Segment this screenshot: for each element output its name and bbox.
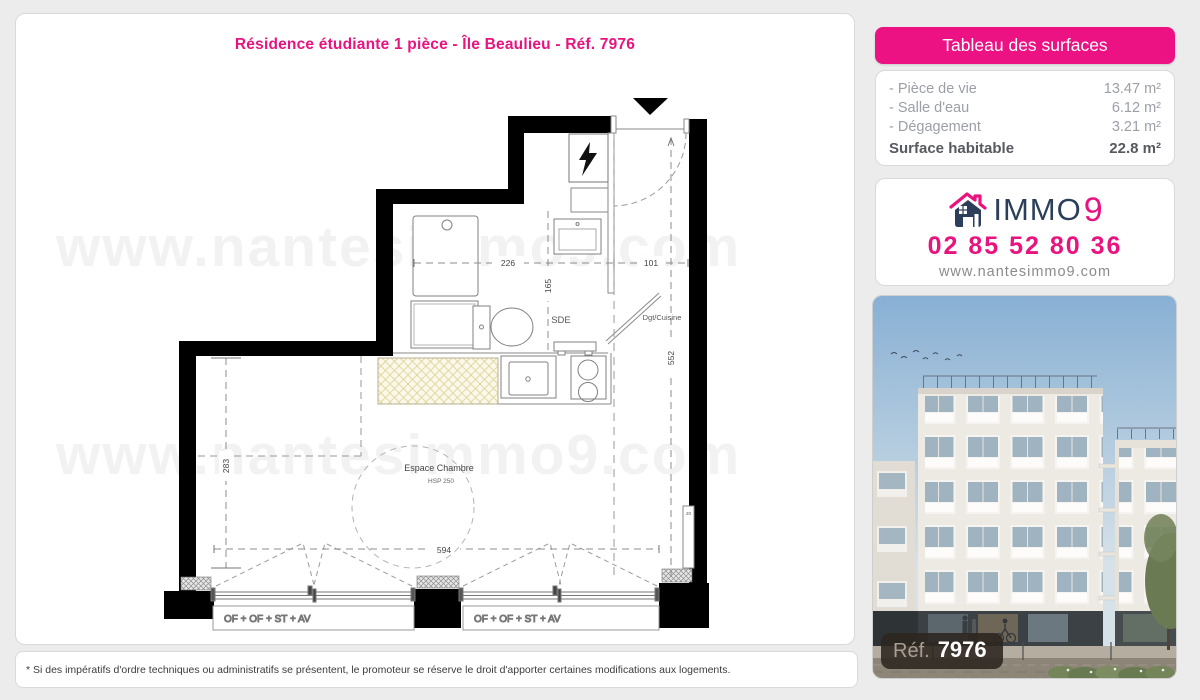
label-sde: SDE bbox=[551, 315, 571, 326]
surface-row: - Dégagement 3.21 m² bbox=[889, 118, 1161, 137]
surfaces-table-title: Tableau des surfaces bbox=[942, 35, 1107, 56]
electrical-panel bbox=[569, 134, 608, 212]
building-photo-illustration bbox=[873, 296, 1177, 679]
disclaimer-bar: * Si des impératifs d'ordre techniques o… bbox=[15, 651, 858, 688]
surface-value: 6.12 m² bbox=[1112, 99, 1161, 118]
svg-text:552: 552 bbox=[666, 351, 676, 365]
window-right: OF + OF + ST + AV bbox=[459, 543, 659, 630]
toilet-tank bbox=[473, 306, 490, 349]
surfaces-table: - Pièce de vie 13.47 m² - Salle d'eau 6.… bbox=[875, 70, 1175, 166]
agency-phone[interactable]: 02 85 52 80 36 bbox=[876, 232, 1174, 261]
svg-text:165: 165 bbox=[543, 279, 553, 293]
house-logo-icon bbox=[947, 190, 991, 230]
bathroom-cabinet bbox=[411, 301, 478, 348]
bathroom-fixtures bbox=[411, 216, 601, 355]
surface-total-value: 22.8 m² bbox=[1109, 140, 1161, 157]
surface-value: 3.21 m² bbox=[1112, 118, 1161, 137]
surface-total-label: Surface habitable bbox=[889, 140, 1014, 157]
floor-plan-drawing: 20 OF + OF + ST + AV OF + OF + ST + bbox=[156, 96, 736, 645]
surface-label: - Dégagement bbox=[889, 118, 981, 137]
agency-logo: IMMO 9 bbox=[876, 189, 1174, 231]
svg-text:226: 226 bbox=[501, 258, 515, 268]
svg-text:OF + OF + ST + AV: OF + OF + ST + AV bbox=[474, 614, 561, 625]
svg-text:283: 283 bbox=[221, 459, 231, 473]
window-left: OF + OF + ST + AV bbox=[211, 543, 415, 630]
pillar-hatching bbox=[181, 569, 692, 590]
flower-bed bbox=[1048, 666, 1175, 679]
main-building bbox=[918, 376, 1103, 636]
shower-tray bbox=[413, 216, 478, 296]
ref-label: Réf. bbox=[893, 640, 930, 663]
label-espace-chambre: Espace Chambre bbox=[404, 463, 474, 473]
agency-website-link[interactable]: www.nantesimmo9.com bbox=[876, 264, 1174, 280]
floor-plan-sheet: Résidence étudiante 1 pièce - Île Beauli… bbox=[15, 13, 855, 645]
svg-text:OF + OF + ST + AV: OF + OF + ST + AV bbox=[224, 614, 311, 625]
surface-value: 13.47 m² bbox=[1104, 80, 1161, 99]
surface-label: - Pièce de vie bbox=[889, 80, 977, 99]
washbasin bbox=[554, 219, 601, 254]
surface-row: - Salle d'eau 6.12 m² bbox=[889, 99, 1161, 118]
disclaimer-text: * Si des impératifs d'ordre techniques o… bbox=[16, 664, 730, 676]
page-title: Résidence étudiante 1 pièce - Île Beauli… bbox=[16, 36, 854, 54]
kitchen-fixtures bbox=[378, 356, 606, 404]
entry-arrow-icon bbox=[633, 98, 668, 115]
left-building bbox=[873, 461, 915, 611]
cooktop bbox=[571, 356, 606, 399]
surface-total-row: Surface habitable 22.8 m² bbox=[889, 140, 1161, 157]
surface-row: - Pièce de vie 13.47 m² bbox=[889, 80, 1161, 99]
toilet-bowl bbox=[491, 308, 533, 346]
label-hsp: HSP 250 bbox=[428, 478, 454, 485]
brand-nine-text: 9 bbox=[1084, 191, 1103, 230]
kitchen-worktop bbox=[378, 358, 498, 404]
building-photo: Réf. 7976 bbox=[872, 295, 1177, 679]
surface-label: - Salle d'eau bbox=[889, 99, 969, 118]
bench bbox=[554, 342, 596, 351]
reference-badge: Réf. 7976 bbox=[881, 633, 1003, 669]
surfaces-table-header: Tableau des surfaces bbox=[875, 27, 1175, 64]
svg-text:101: 101 bbox=[644, 258, 658, 268]
svg-text:594: 594 bbox=[437, 545, 451, 555]
label-dgt-cuisine: Dgt/Cuisine bbox=[643, 313, 682, 322]
ref-number: 7976 bbox=[938, 637, 987, 663]
svg-text:20: 20 bbox=[686, 511, 692, 516]
radiator: 20 bbox=[683, 506, 694, 568]
brand-immo-text: IMMO bbox=[993, 192, 1081, 228]
room-labels: SDE Dgt/Cuisine Espace Chambre HSP 250 bbox=[352, 313, 681, 568]
agency-contact-card: IMMO 9 02 85 52 80 36 www.nantesimmo9.co… bbox=[875, 178, 1175, 286]
entry-door bbox=[611, 116, 689, 206]
plan-sheet-page: { "page": { "title": "Résidence étudiant… bbox=[0, 0, 1200, 700]
floor-plan-svg: 20 OF + OF + ST + AV OF + OF + ST + bbox=[156, 96, 736, 645]
